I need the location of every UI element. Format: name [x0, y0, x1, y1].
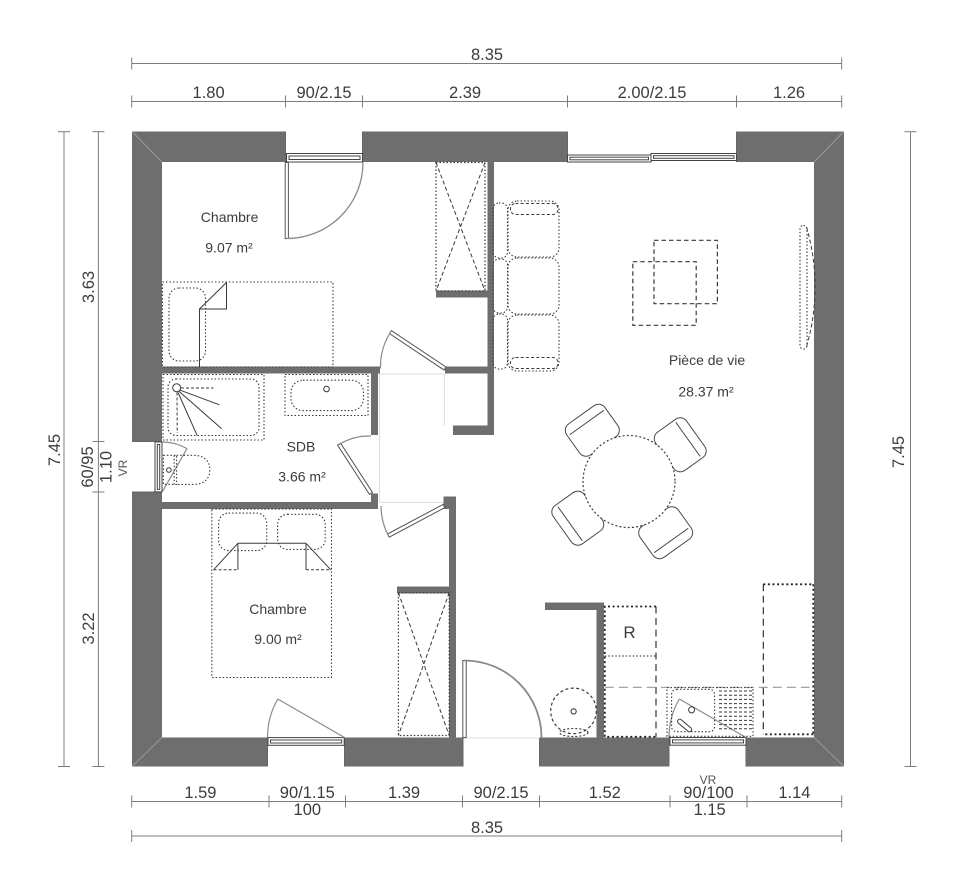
svg-text:2.39: 2.39 — [449, 84, 481, 102]
svg-text:7.45: 7.45 — [46, 434, 64, 466]
svg-text:8.35: 8.35 — [471, 46, 503, 64]
svg-text:3.22: 3.22 — [80, 612, 98, 644]
svg-text:90/2.15: 90/2.15 — [473, 784, 528, 802]
svg-text:3.63: 3.63 — [80, 271, 98, 303]
svg-text:2.00/2.15: 2.00/2.15 — [618, 84, 687, 102]
svg-text:1.39: 1.39 — [388, 784, 420, 802]
svg-text:Chambre: Chambre — [249, 601, 307, 617]
svg-text:100: 100 — [294, 801, 322, 819]
svg-text:7.45: 7.45 — [890, 436, 908, 468]
svg-text:60/95: 60/95 — [79, 446, 97, 487]
svg-text:1.10: 1.10 — [98, 451, 116, 483]
svg-text:28.37 m²: 28.37 m² — [678, 384, 734, 400]
svg-text:8.35: 8.35 — [471, 819, 503, 837]
svg-text:1.59: 1.59 — [184, 784, 216, 802]
svg-text:90/2.15: 90/2.15 — [296, 84, 351, 102]
svg-text:Chambre: Chambre — [201, 209, 259, 225]
svg-text:Pièce de vie: Pièce de vie — [669, 352, 745, 368]
svg-text:1.52: 1.52 — [589, 784, 621, 802]
svg-text:VR: VR — [116, 459, 130, 476]
svg-text:1.14: 1.14 — [778, 784, 810, 802]
svg-text:90/1.15: 90/1.15 — [280, 784, 335, 802]
svg-text:9.00 m²: 9.00 m² — [254, 631, 302, 647]
svg-text:1.26: 1.26 — [773, 84, 805, 102]
svg-text:9.07 m²: 9.07 m² — [205, 240, 253, 256]
svg-text:VR: VR — [700, 773, 717, 787]
svg-text:SDB: SDB — [287, 439, 316, 455]
svg-text:1.80: 1.80 — [193, 84, 225, 102]
svg-text:3.66 m²: 3.66 m² — [278, 469, 326, 485]
svg-text:1.15: 1.15 — [694, 801, 726, 819]
svg-text:R: R — [623, 623, 635, 642]
